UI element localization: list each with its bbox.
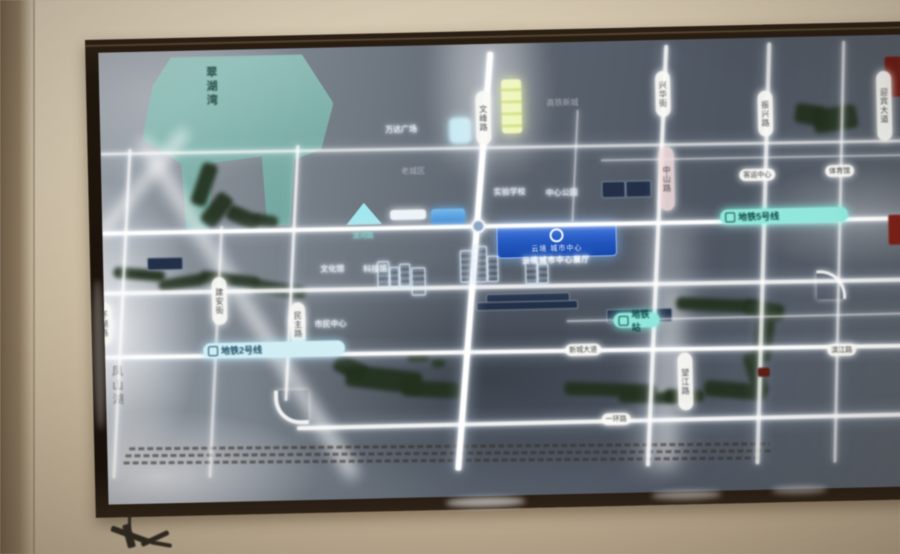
project-name: 云境 城市中心: [531, 242, 582, 253]
wall-corner-shadow: [0, 0, 34, 554]
poi-label: 滨江路: [827, 344, 856, 357]
yellow-building-landmark-icon: [501, 79, 522, 133]
road-corner: [816, 270, 846, 300]
road-corner: [274, 390, 309, 425]
metro-line-label: 地铁2号线: [203, 340, 345, 358]
road-vertical: [571, 110, 578, 222]
poi-label: 客运中心: [739, 168, 775, 181]
road-name-pill: 中山路: [659, 147, 675, 211]
poi-label: 一环路: [602, 413, 631, 426]
building-wireframe-icon: [525, 260, 538, 284]
scene: 翠湖湾 云境 城市中心 云境城市中心展厅: [0, 0, 900, 554]
building-wireframe-icon: [460, 250, 474, 282]
road-name-pill: 兴华街: [655, 71, 671, 117]
white-landmark-bar: [390, 209, 426, 220]
metro-logo-icon: [618, 315, 628, 325]
bezel-reflection: [651, 490, 721, 501]
building-wireframe-icon: [537, 264, 548, 284]
blue-building-landmark-icon: [449, 117, 472, 143]
bezel-reflection: [771, 485, 827, 494]
photo-of-map-display: 翠湖湾 云境 城市中心 云境城市中心展厅: [0, 0, 900, 554]
metro-logo-icon: [725, 212, 735, 222]
building-wireframe-icon: [487, 256, 499, 282]
metro-line-text: 地铁5号线: [738, 209, 779, 223]
district-label: 老城区: [401, 165, 425, 177]
road-name-pill: 民主路: [290, 302, 306, 346]
road-name-pill: 望江路: [677, 352, 693, 410]
illuminated-map: 翠湖湾 云境 城市中心 云境城市中心展厅: [98, 34, 900, 504]
road-horizontal: [601, 154, 900, 161]
road-name-label: 滨河路: [352, 231, 373, 241]
legend-fine-print-row: [129, 442, 769, 450]
road-name-pill: 文峰路: [475, 91, 491, 145]
metro-line-text: 地铁2号线: [221, 343, 262, 357]
building-wireframe-icon: [411, 267, 426, 295]
poi-label: 体育馆: [825, 165, 854, 178]
plant-silhouette: [128, 514, 131, 532]
road-name-pill: 建安街: [211, 277, 227, 325]
metro-station-icon: [471, 219, 485, 233]
metro-logo-icon: [208, 346, 218, 356]
blue-station-landmark-icon: [431, 208, 465, 225]
glare-column: [636, 219, 693, 471]
area-label: 万达广场: [385, 123, 417, 135]
metro-line-label: 地铁站: [613, 312, 659, 328]
area-label: 中心公园: [545, 187, 577, 199]
building-wireframe-icon: [473, 246, 488, 282]
road-name-pill: 迎宾大道: [876, 71, 893, 141]
area-label: 文化馆: [320, 263, 344, 275]
wall-crease-line: [33, 0, 35, 554]
red-label-block: [888, 214, 900, 244]
poi-label: 新城大道: [565, 343, 601, 356]
metro-line-label: 地铁5号线: [720, 207, 848, 225]
lake-label: 翠湖湾: [203, 66, 220, 108]
legend-fine-print-row: [125, 449, 773, 457]
project-subtitle: 云境城市中心展厅: [491, 253, 621, 267]
project-logo-icon: [549, 228, 563, 242]
metro-line-text: 地铁站: [631, 307, 655, 334]
red-label-block: [758, 368, 770, 377]
bezel-reflection: [445, 496, 525, 508]
area-label: 实验学校: [493, 186, 525, 198]
road-name-pill: 振兴路: [757, 90, 773, 136]
map-label-box: [147, 257, 183, 271]
building-wireframe-icon: [399, 264, 411, 287]
legend-fine-print-row: [124, 457, 760, 464]
building-wireframe-icon: [389, 267, 399, 287]
map-label-box: [476, 300, 578, 311]
area-label: 科技馆: [363, 263, 387, 275]
road-horizontal: [297, 412, 900, 430]
district-label: 高铁新城: [546, 97, 578, 109]
park-shape: [402, 380, 461, 399]
park-shape: [431, 359, 445, 367]
mountain-landmark-icon: [346, 202, 382, 225]
map-label-box: [625, 180, 651, 198]
road-vertical: [112, 149, 131, 479]
map-display-panel: 翠湖湾 云境 城市中心 云境城市中心展厅: [85, 21, 900, 518]
road-vertical: [833, 41, 844, 463]
area-label: 市民中心: [314, 318, 346, 330]
map-label-box: [601, 181, 625, 199]
